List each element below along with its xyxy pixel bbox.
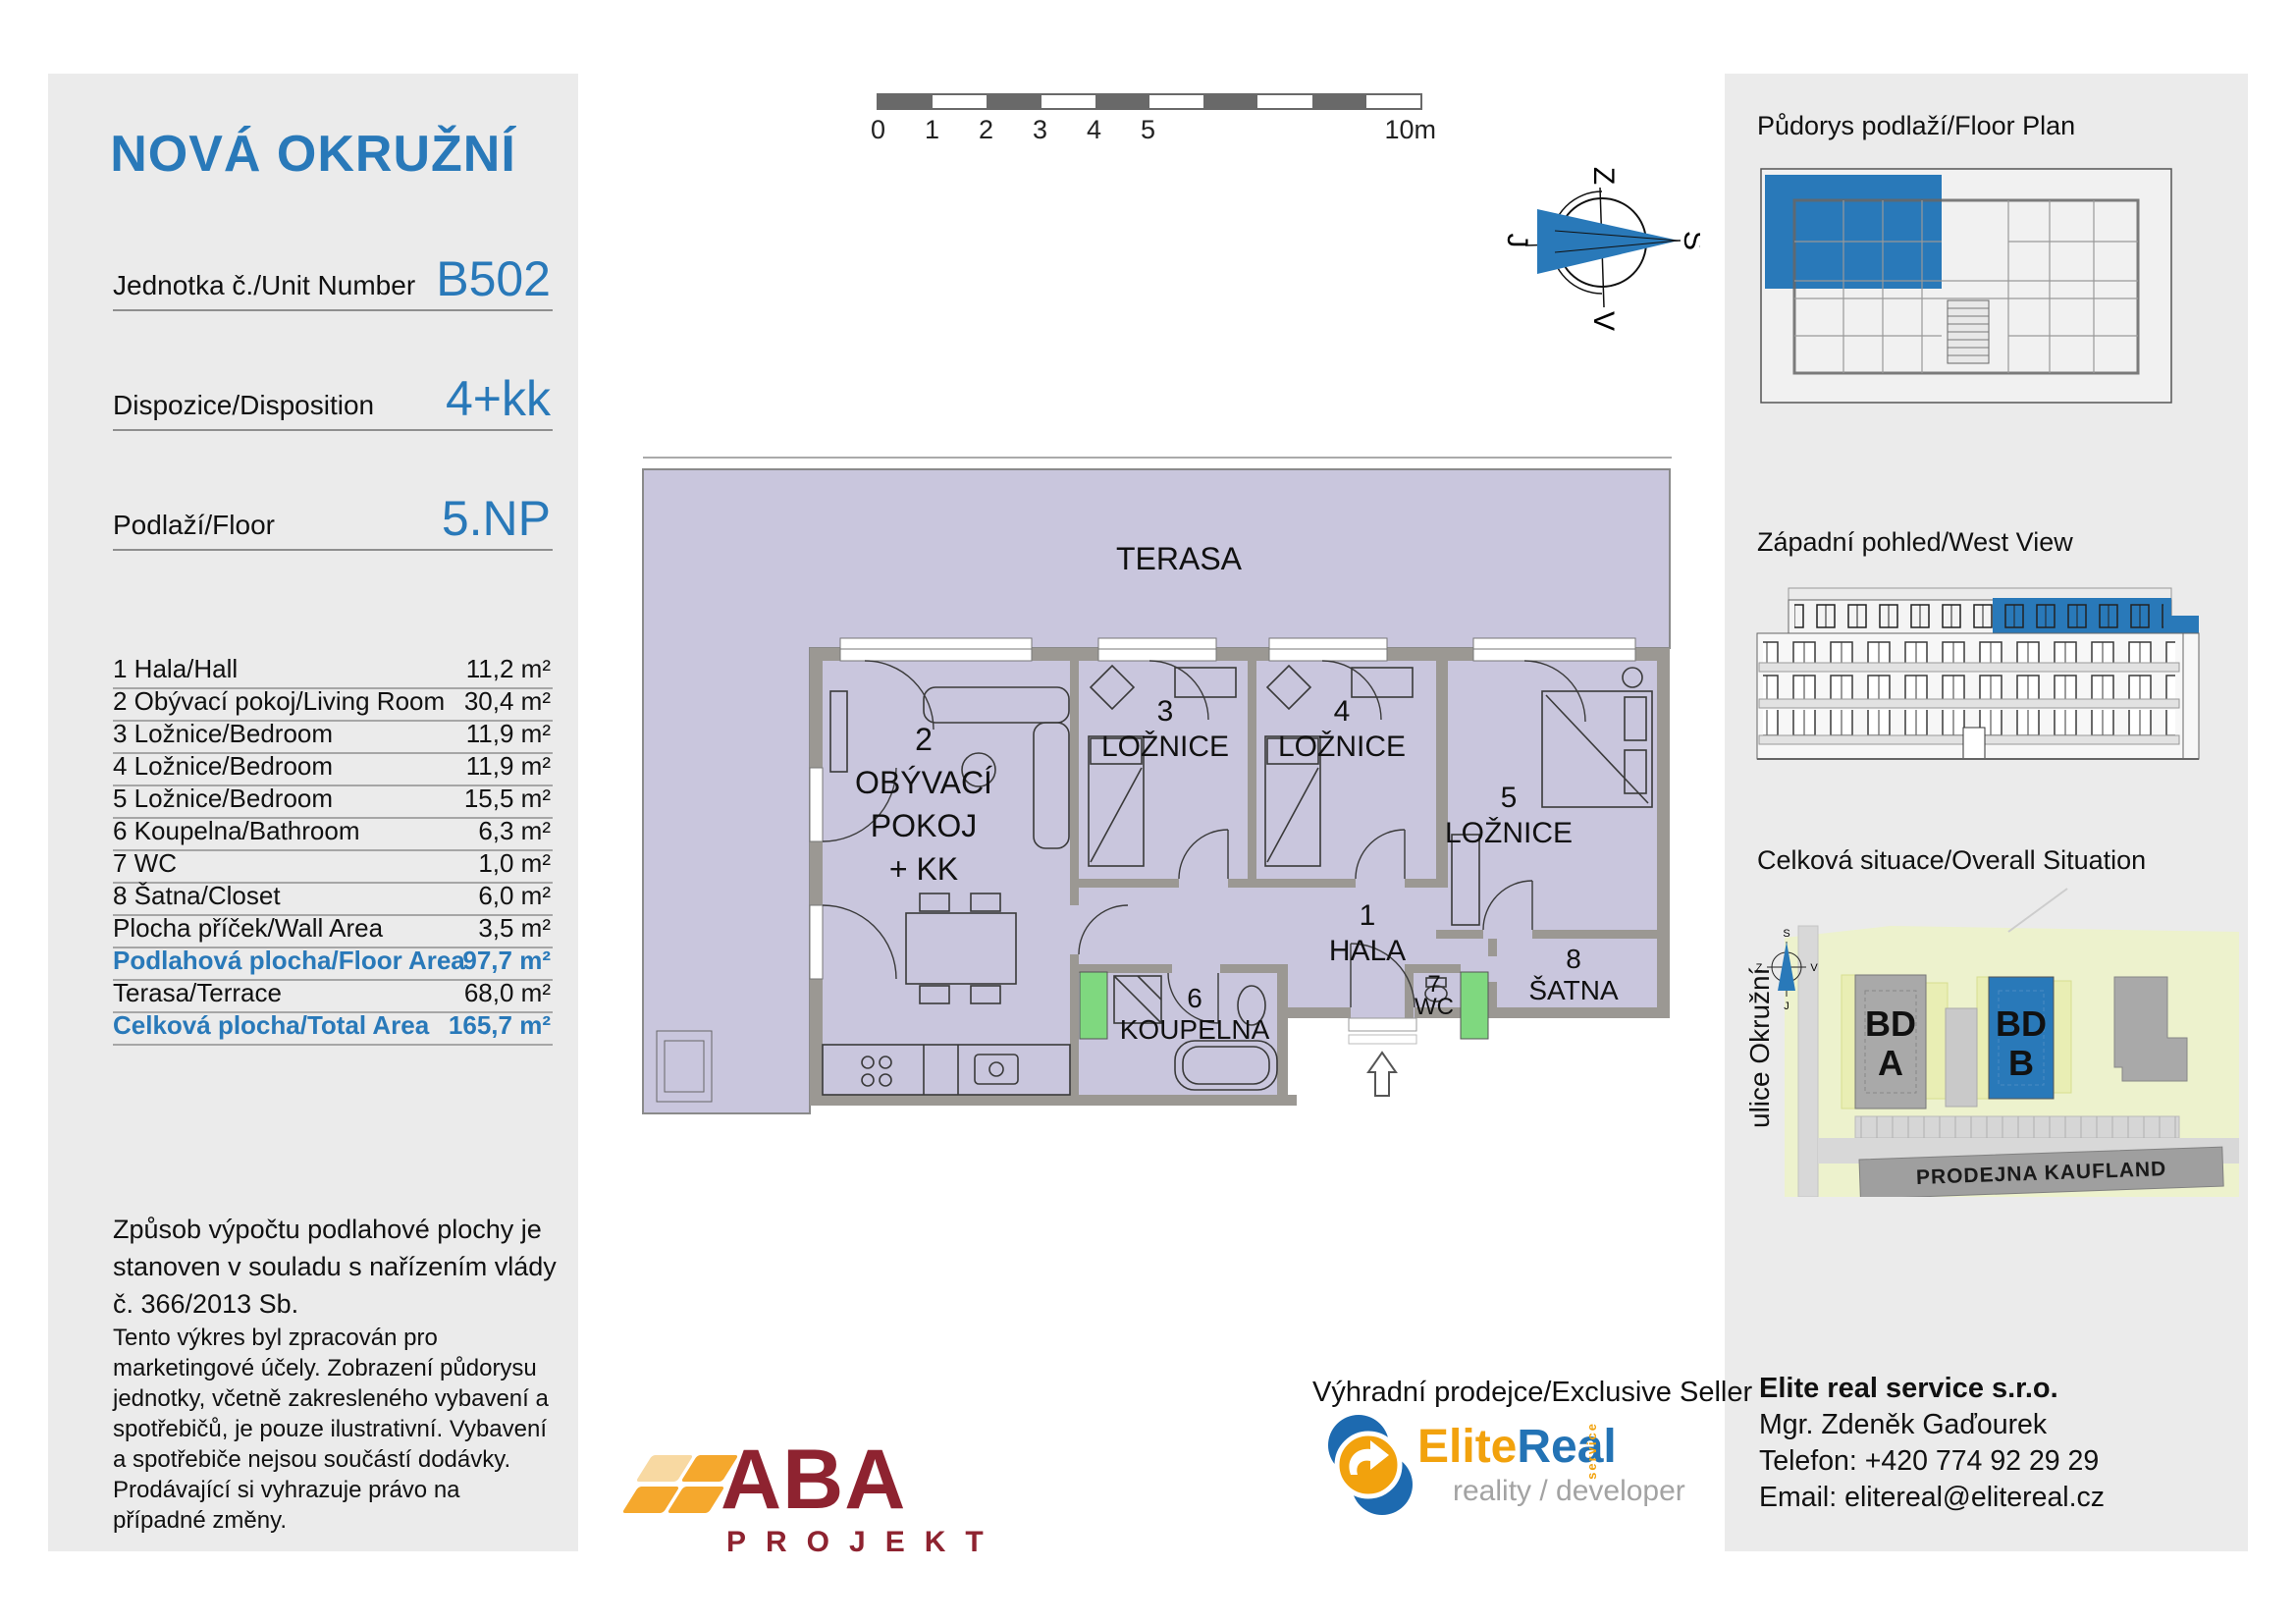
area-row-hall: 1 Hala/Hall11,2 m² xyxy=(113,655,553,689)
area-label: 3 Ložnice/Bedroom xyxy=(113,719,333,749)
site-compass-n: S xyxy=(1783,928,1789,940)
elitereal-real: Real xyxy=(1517,1421,1616,1473)
area-label: Podlahová plocha/Floor Area xyxy=(113,946,465,976)
elitereal-elite: Elite xyxy=(1417,1421,1517,1473)
area-label: 2 Obývací pokoj/Living Room xyxy=(113,686,445,717)
area-value: 165,7 m² xyxy=(449,1010,551,1041)
label-bedroom4-num: 4 xyxy=(1334,695,1351,728)
label-hall-num: 1 xyxy=(1360,899,1376,932)
entrance-arrow-icon xyxy=(1368,1053,1396,1096)
contact-block: Elite real service s.r.o. Mgr. Zdeněk Ga… xyxy=(1759,1371,2105,1516)
scale-segment xyxy=(987,95,1041,108)
exclusive-seller-heading: Výhradní prodejce/Exclusive Seller xyxy=(1312,1377,1752,1409)
label-bedroom5-num: 5 xyxy=(1501,782,1518,814)
area-label: 1 Hala/Hall xyxy=(113,654,238,684)
scale-segment xyxy=(1257,95,1311,108)
bd-a-line1: BD xyxy=(1865,1003,1916,1044)
label-bedroom3: LOŽNICE xyxy=(1101,731,1229,763)
disposition-label: Dispozice/Disposition xyxy=(113,390,374,421)
scale-tick-2: 2 xyxy=(979,115,993,145)
situation-heading: Celková situace/Overall Situation xyxy=(1757,845,2146,876)
scale-bar-segments xyxy=(877,93,1422,110)
area-label: Celková plocha/Total Area xyxy=(113,1010,429,1041)
aba-wordmark: ABA xyxy=(721,1432,906,1529)
main-floor-plan: TERASA 2 OBÝVACÍ POKOJ + KK 3 LOŽNICE 4 … xyxy=(629,444,1684,1126)
compass-letter-left: J xyxy=(1504,234,1533,248)
area-row-bedroom5: 5 Ložnice/Bedroom15,5 m² xyxy=(113,785,553,819)
scale-segment xyxy=(1203,95,1257,108)
unit-number-value: B502 xyxy=(436,250,551,307)
label-bathroom-num: 6 xyxy=(1187,983,1202,1013)
disposition-value: 4+kk xyxy=(446,370,551,427)
label-living-num: 2 xyxy=(915,722,933,757)
compass-letter-top: Z xyxy=(1587,167,1620,185)
area-row-walls: Plocha příček/Wall Area3,5 m² xyxy=(113,914,553,948)
compass-rose: Z S V J xyxy=(1504,162,1700,331)
scale-segment xyxy=(1366,95,1420,108)
entrance-step xyxy=(1349,1035,1416,1044)
legal-note-calculation: Způsob výpočtu podlahové plochy je stano… xyxy=(113,1211,566,1323)
label-closet: ŠATNA xyxy=(1528,975,1619,1005)
area-value: 11,9 m² xyxy=(466,719,551,749)
area-value: 30,4 m² xyxy=(464,686,551,717)
label-bedroom5: LOŽNICE xyxy=(1445,817,1573,849)
unit-number-label: Jednotka č./Unit Number xyxy=(113,270,415,301)
legal-note-marketing: Tento výkres byl zpracován pro marketing… xyxy=(113,1323,553,1536)
area-row-terrace: Terasa/Terrace68,0 m² xyxy=(113,979,553,1013)
area-label: Terasa/Terrace xyxy=(113,978,282,1008)
area-label: 5 Ložnice/Bedroom xyxy=(113,784,333,814)
contact-person: Mgr. Zdeněk Gaďourek xyxy=(1759,1407,2105,1443)
area-value: 15,5 m² xyxy=(464,784,551,814)
scale-segment xyxy=(1312,95,1366,108)
area-row-floor-area: Podlahová plocha/Floor Area97,7 m² xyxy=(113,947,553,981)
situation-map: S J Z V PRODEJNA KAUFLAND xyxy=(1743,881,2246,1197)
scale-tick-1: 1 xyxy=(925,115,939,145)
building-connector xyxy=(1946,1008,1977,1107)
area-row-bedroom3: 3 Ložnice/Bedroom11,9 m² xyxy=(113,720,553,754)
scale-segment xyxy=(879,95,933,108)
area-value: 97,7 m² xyxy=(462,946,551,976)
mini-floor-plan xyxy=(1755,163,2177,408)
scale-tick-10m: 10m xyxy=(1384,115,1436,145)
scale-segment xyxy=(1149,95,1203,108)
contact-company: Elite real service s.r.o. xyxy=(1759,1371,2105,1407)
scale-tick-3: 3 xyxy=(1033,115,1047,145)
scale-tick-0: 0 xyxy=(871,115,885,145)
area-value: 6,3 m² xyxy=(478,816,551,846)
label-wc: WC xyxy=(1415,994,1454,1020)
area-value: 11,2 m² xyxy=(466,654,551,684)
area-label: 6 Koupelna/Bathroom xyxy=(113,816,360,846)
unit-number-row: Jednotka č./Unit Number B502 xyxy=(113,231,553,311)
label-terrace: TERASA xyxy=(1116,541,1243,576)
label-bedroom4: LOŽNICE xyxy=(1278,731,1406,763)
elitereal-icon xyxy=(1321,1412,1419,1518)
project-title: NOVÁ OKRUŽNÍ xyxy=(48,125,578,184)
west-view-elevation xyxy=(1749,572,2211,774)
floor-label: Podlaží/Floor xyxy=(113,510,275,541)
area-row-closet: 8 Šatna/Closet6,0 m² xyxy=(113,882,553,916)
label-living-3: + KK xyxy=(889,851,958,887)
compass-letter-bottom: V xyxy=(1587,311,1620,331)
bd-b-line1: BD xyxy=(1996,1003,2047,1044)
elitereal-service: service xyxy=(1584,1422,1599,1480)
bd-b-line2: B xyxy=(2008,1043,2034,1083)
area-value: 1,0 m² xyxy=(478,848,551,879)
site-compass-e: V xyxy=(1810,962,1818,974)
elitereal-tagline: reality / developer xyxy=(1453,1475,1685,1508)
shaft-green-bathroom xyxy=(1080,972,1107,1039)
area-label: 7 WC xyxy=(113,848,177,879)
label-hall: HALA xyxy=(1329,935,1406,967)
right-info-panel: Půdorys podlaží/Floor Plan xyxy=(1725,74,2248,1551)
floor-plan-heading: Půdorys podlaží/Floor Plan xyxy=(1757,111,2075,141)
scale-segment xyxy=(1095,95,1149,108)
area-value: 6,0 m² xyxy=(478,881,551,911)
area-row-living: 2 Obývací pokoj/Living Room30,4 m² xyxy=(113,687,553,722)
area-row-wc: 7 WC1,0 m² xyxy=(113,849,553,884)
unit-highlight xyxy=(1765,175,1942,289)
left-info-panel: NOVÁ OKRUŽNÍ Jednotka č./Unit Number B50… xyxy=(48,74,578,1551)
label-closet-num: 8 xyxy=(1566,944,1581,974)
label-bedroom3-num: 3 xyxy=(1157,695,1174,728)
scale-tick-4: 4 xyxy=(1087,115,1101,145)
label-living-2: POKOJ xyxy=(871,808,977,843)
compass-letter-right: S xyxy=(1678,231,1700,250)
scale-segment xyxy=(1041,95,1095,108)
area-label: 8 Šatna/Closet xyxy=(113,881,281,911)
area-row-bathroom: 6 Koupelna/Bathroom6,3 m² xyxy=(113,817,553,851)
label-living-1: OBÝVACÍ xyxy=(855,765,992,800)
west-view-heading: Západní pohled/West View xyxy=(1757,527,2073,558)
scale-segment xyxy=(933,95,987,108)
street-label: ulice Okružní xyxy=(1744,967,1775,1128)
aba-subtitle: PROJEKT xyxy=(726,1526,1003,1559)
label-bathroom: KOUPELNA xyxy=(1120,1014,1270,1045)
compass-needle xyxy=(1537,209,1679,274)
area-value: 11,9 m² xyxy=(466,751,551,782)
area-row-total-area: Celková plocha/Total Area165,7 m² xyxy=(113,1011,553,1046)
contact-email: Email: elitereal@elitereal.cz xyxy=(1759,1480,2105,1516)
floor-row: Podlaží/Floor 5.NP xyxy=(113,470,553,551)
area-label: 4 Ložnice/Bedroom xyxy=(113,751,333,782)
floor-value: 5.NP xyxy=(442,490,551,547)
contact-phone: Telefon: +420 774 92 29 29 xyxy=(1759,1443,2105,1480)
area-value: 68,0 m² xyxy=(464,978,551,1008)
elitereal-logo: EliteReal service reality / developer xyxy=(1321,1412,1714,1559)
area-row-bedroom4: 4 Ložnice/Bedroom11,9 m² xyxy=(113,752,553,786)
area-value: 3,5 m² xyxy=(478,913,551,944)
shaft-green-closet xyxy=(1461,972,1488,1039)
bd-a-line2: A xyxy=(1878,1043,1903,1083)
scale-tick-5: 5 xyxy=(1141,115,1155,145)
disposition-row: Dispozice/Disposition 4+kk xyxy=(113,351,553,431)
area-label: Plocha příček/Wall Area xyxy=(113,913,383,944)
site-compass-s: J xyxy=(1784,1001,1789,1012)
floor-plan-sheet: NOVÁ OKRUŽNÍ Jednotka č./Unit Number B50… xyxy=(0,0,2296,1624)
scale-bar: 0 1 2 3 4 5 10m xyxy=(877,93,1420,152)
entrance-threshold xyxy=(1349,1018,1416,1031)
aba-projekt-logo: ABA PROJEKT xyxy=(628,1451,962,1564)
